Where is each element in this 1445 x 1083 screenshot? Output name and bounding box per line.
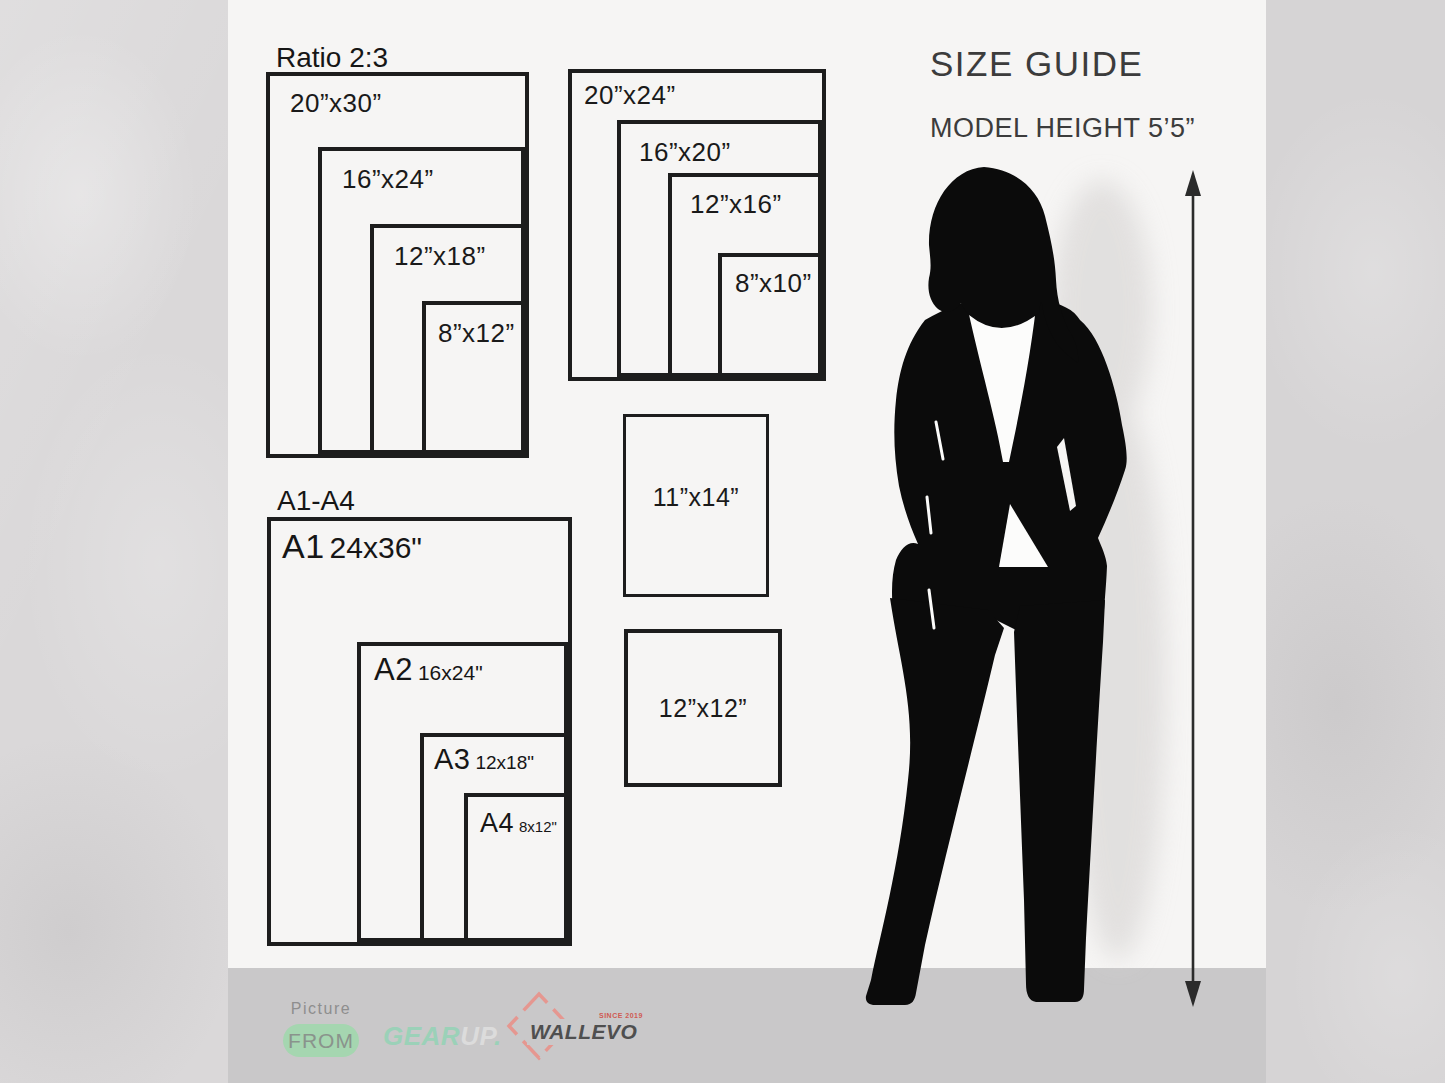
size-rect-8x10: 8”x10”: [718, 253, 822, 377]
right-texture-margin: [1266, 0, 1445, 1083]
wallevo-since-text: SINCE 2019: [599, 1012, 643, 1019]
size-label-20x30: 20”x30”: [290, 88, 382, 119]
size-label-8x10: 8”x10”: [735, 268, 812, 299]
left-texture-margin: [0, 0, 228, 1083]
gearup-logo: GEARUP.: [383, 1021, 502, 1052]
size-rect-8x12: 8”x12”: [422, 301, 525, 454]
size-label-20x24: 20”x24”: [584, 80, 676, 111]
model-height-label: MODEL HEIGHT 5’5”: [930, 113, 1195, 144]
size-label-a2-row: A2 16x24": [374, 652, 483, 688]
size-label-12x12: 12”x12”: [659, 694, 747, 723]
a4-inches: 8x12": [519, 818, 557, 835]
gearup-gear-text: GEAR: [383, 1021, 460, 1051]
a2-inches: 16x24": [418, 661, 483, 685]
from-label: FROM: [288, 1029, 354, 1053]
wallevo-logo-text: WALLEVO: [527, 1019, 640, 1045]
a2-name: A2: [374, 652, 413, 688]
a3-name: A3: [434, 743, 470, 776]
size-label-8x12: 8”x12”: [438, 318, 515, 349]
ratio-group-title: Ratio 2:3: [276, 42, 388, 74]
picture-from-logo-text: Picture: [283, 1000, 359, 1018]
height-measure-arrow-icon: [1180, 165, 1210, 1015]
a-group-title: A1-A4: [277, 485, 355, 517]
a1-inches: 24x36": [330, 531, 422, 565]
size-label-12x18: 12”x18”: [394, 241, 486, 272]
model-silhouette: [860, 160, 1180, 1020]
silhouette-left-leg: [866, 598, 1004, 1005]
a4-name: A4: [480, 808, 514, 839]
a3-inches: 12x18": [475, 752, 534, 774]
size-label-11x14: 11”x14”: [653, 483, 739, 512]
size-label-16x24: 16”x24”: [342, 164, 434, 195]
page-title: SIZE GUIDE: [930, 44, 1143, 84]
size-rect-11x14: 11”x14”: [623, 414, 769, 597]
size-label-12x16: 12”x16”: [690, 189, 782, 220]
size-label-a3-row: A3 12x18": [434, 743, 534, 776]
size-label-16x20: 16”x20”: [639, 137, 731, 168]
size-label-a4-row: A4 8x12": [480, 808, 557, 839]
silhouette-right-leg: [1014, 600, 1105, 1002]
size-label-a1-row: A1 24x36": [282, 527, 422, 566]
a1-name: A1: [282, 527, 325, 566]
size-guide-image: Ratio 2:3 20”x30” 16”x24” 12”x18” 8”x12”…: [0, 0, 1445, 1083]
gearup-up-text: UP: [460, 1021, 494, 1051]
size-rect-12x12: 12”x12”: [624, 629, 782, 787]
picture-from-logo-pill: FROM: [283, 1024, 359, 1057]
